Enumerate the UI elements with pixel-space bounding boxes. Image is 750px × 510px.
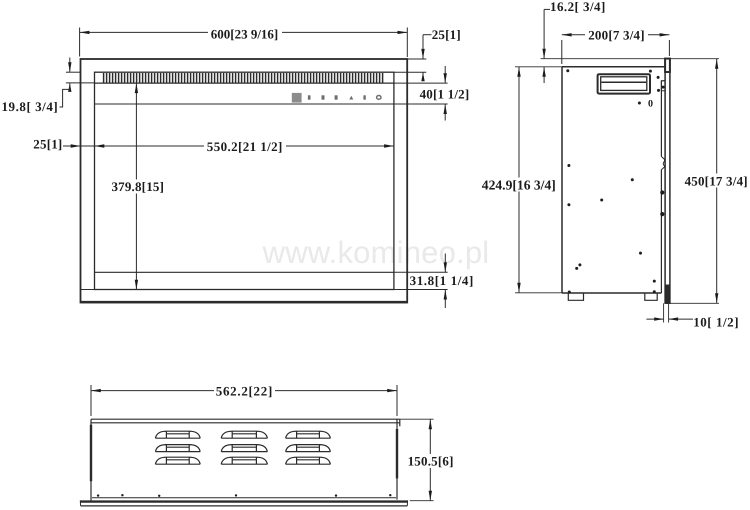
svg-text:450[17 3/4]: 450[17 3/4] (685, 173, 748, 188)
svg-text:10[ 1/2]: 10[ 1/2] (693, 315, 739, 330)
svg-text:600[23 9/16]: 600[23 9/16] (211, 27, 279, 42)
svg-text:0: 0 (648, 99, 653, 110)
svg-text:19.8[ 3/4]: 19.8[ 3/4] (2, 99, 59, 114)
svg-text:550.2[21 1/2]: 550.2[21 1/2] (207, 139, 283, 154)
svg-text:200[7 3/4]: 200[7 3/4] (588, 27, 645, 42)
svg-text:150.5[6]: 150.5[6] (408, 453, 454, 468)
svg-text:25[1]: 25[1] (33, 136, 62, 151)
svg-text:424.9[16 3/4]: 424.9[16 3/4] (482, 177, 556, 192)
svg-text:www.komineo.pl: www.komineo.pl (262, 235, 490, 270)
svg-text:16.2[ 3/4]: 16.2[ 3/4] (550, 0, 606, 14)
svg-text:31.8[1 1/4]: 31.8[1 1/4] (410, 273, 474, 288)
svg-text:25[1]: 25[1] (432, 27, 461, 42)
svg-text:379.8[15]: 379.8[15] (111, 179, 164, 194)
svg-text:40[1 1/2]: 40[1 1/2] (420, 86, 470, 101)
svg-text:562.2[22]: 562.2[22] (216, 383, 273, 398)
